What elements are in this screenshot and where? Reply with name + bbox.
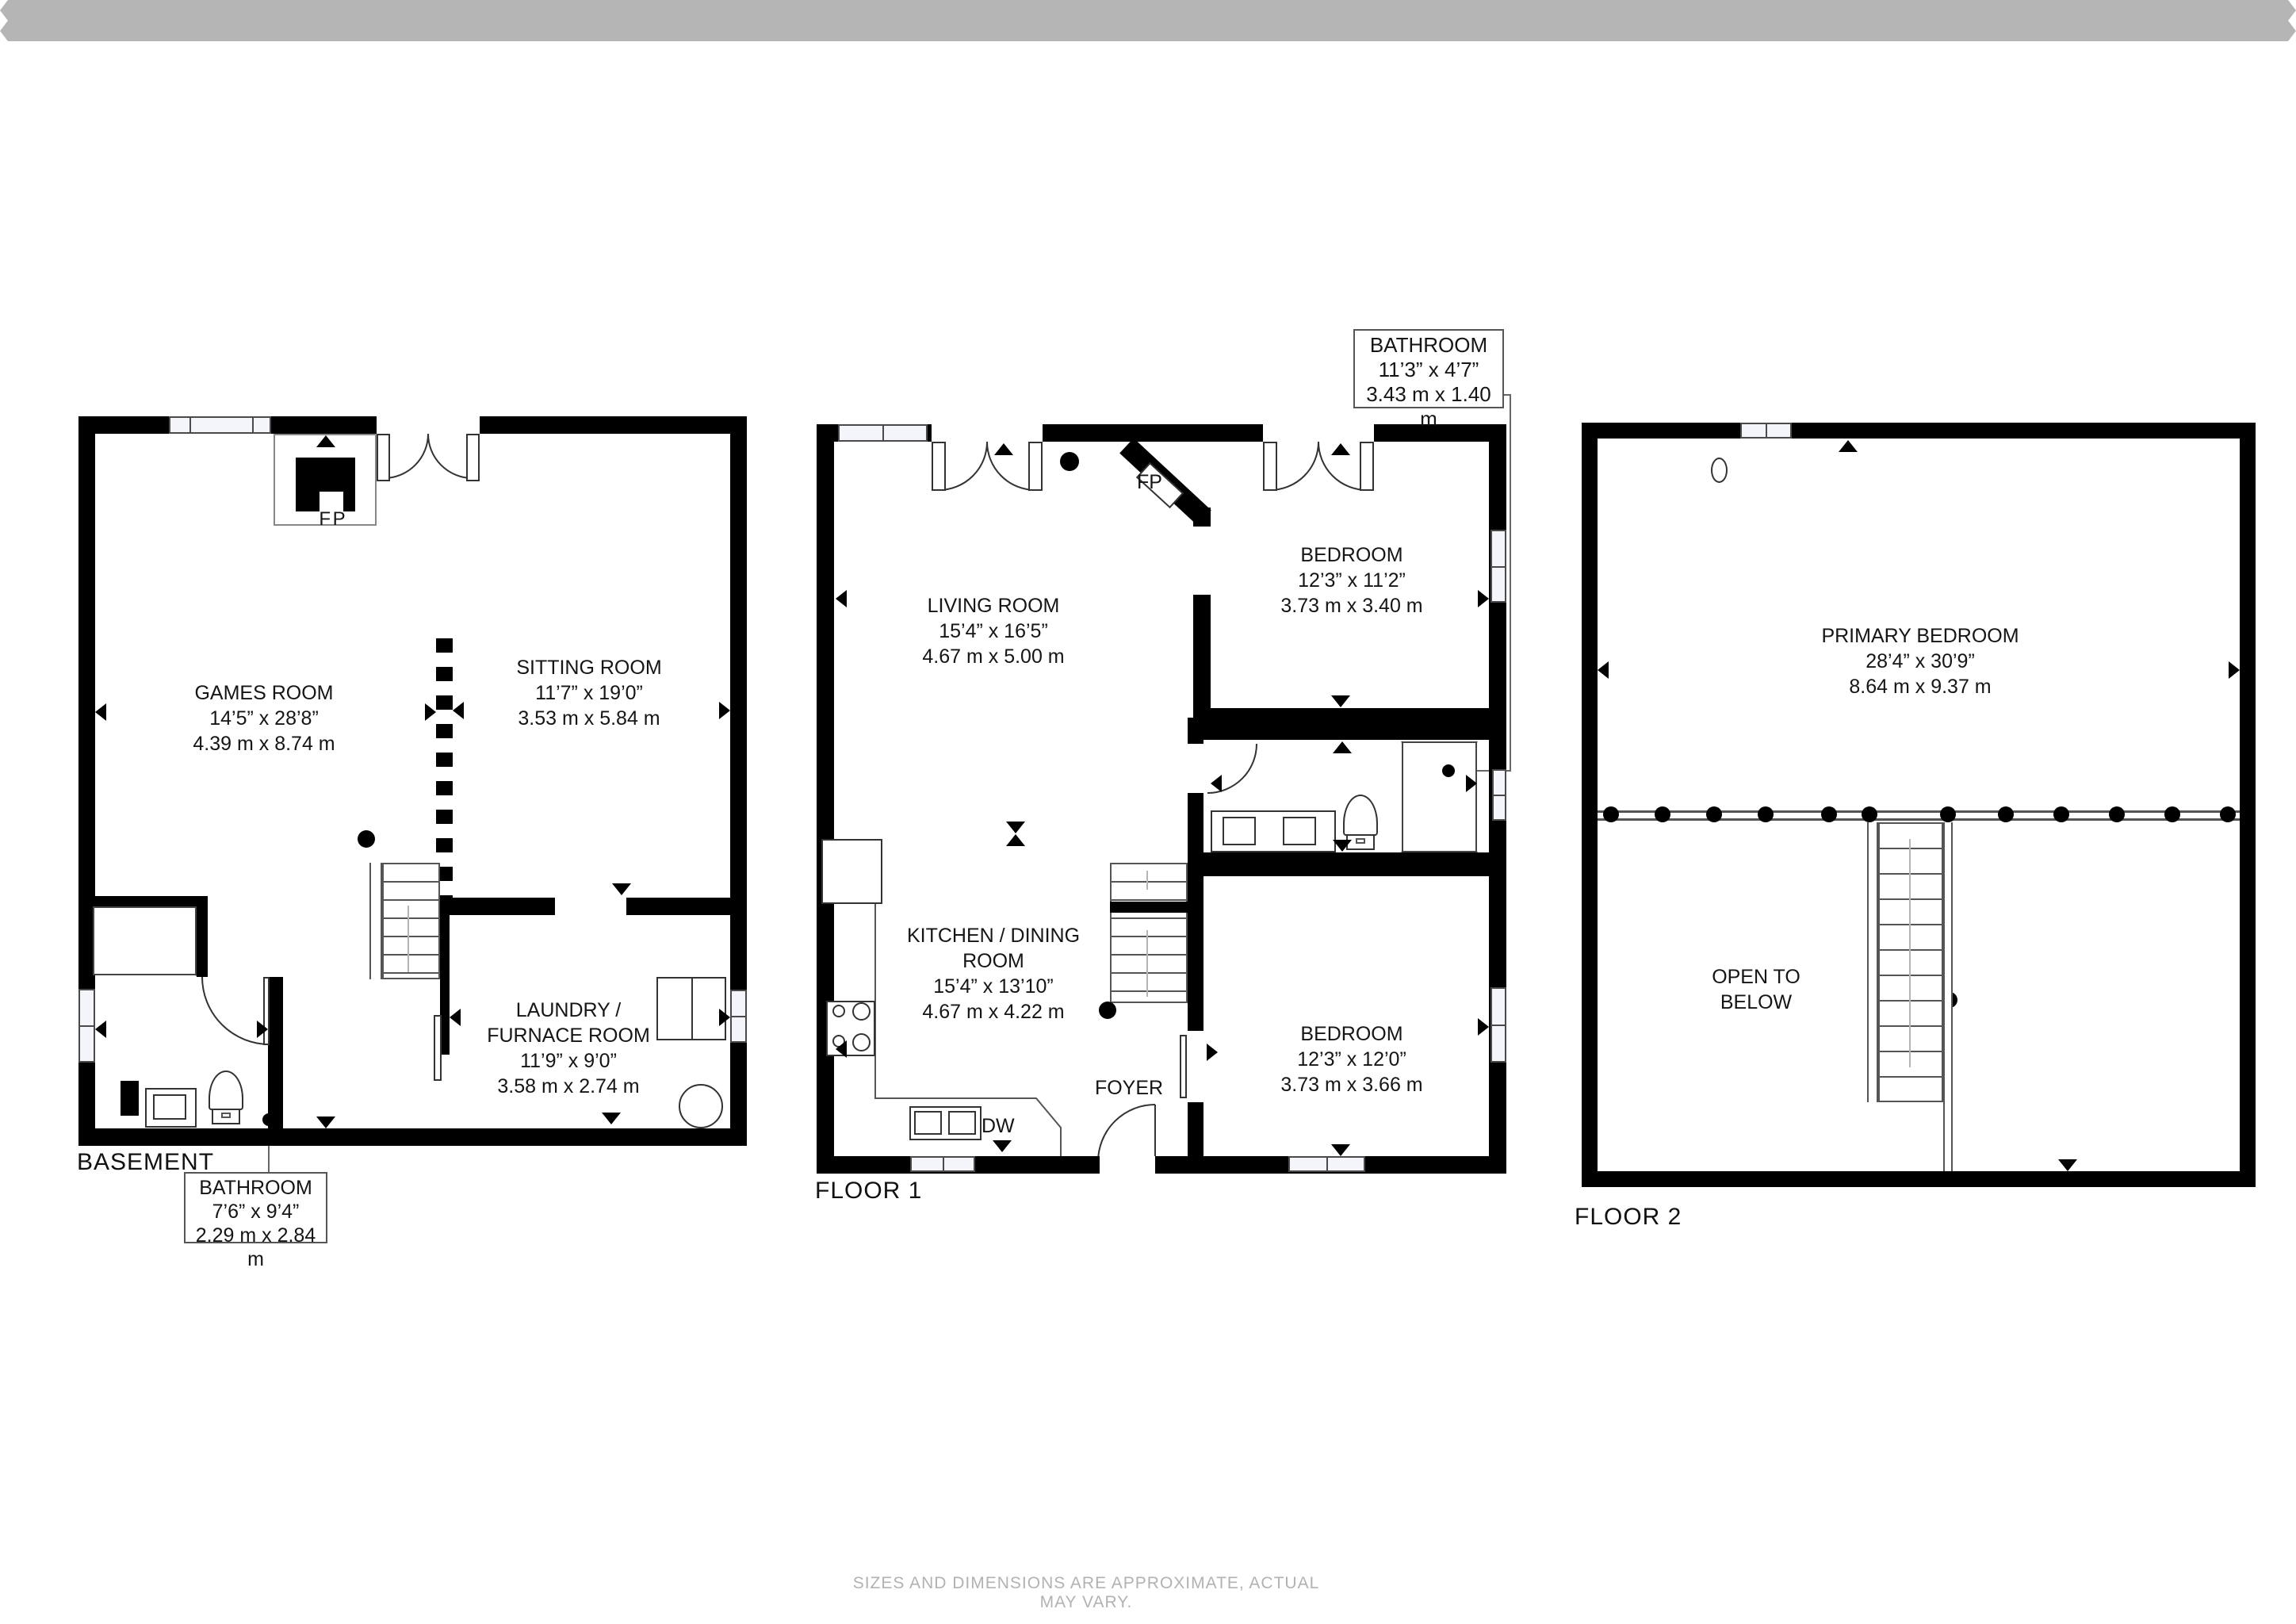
dishwasher-label: DW (982, 1113, 1029, 1139)
measure-arrow-right (719, 1009, 730, 1026)
measure-arrow-down (1331, 695, 1350, 707)
door-leaf (434, 1015, 442, 1081)
measure-arrow-down (612, 883, 631, 895)
railing (1598, 818, 2240, 821)
room-dim-metric: 3.73 m x 3.66 m (1233, 1072, 1471, 1097)
room-name: BEDROOM (1233, 542, 1471, 568)
burner (852, 1033, 871, 1051)
railing-post (2164, 806, 2180, 822)
wall (1582, 423, 2256, 439)
railing-post (1758, 806, 1774, 822)
window-mullion (1492, 1025, 1505, 1026)
wall (1188, 718, 1203, 744)
measure-arrow-right (257, 1021, 268, 1038)
room-dim-metric: 3.43 m x 1.40 m (1355, 382, 1502, 431)
pot-light (1099, 1002, 1116, 1019)
room-name: KITCHEN / DINING ROOM (890, 923, 1096, 974)
stair-break-bar (1110, 902, 1188, 913)
room-name: FOYER (1081, 1075, 1177, 1101)
appliance-divider (691, 979, 693, 1039)
measure-arrow-right (1478, 590, 1489, 607)
window-mullion (252, 418, 254, 432)
room-dim-metric: 4.39 m x 8.74 m (145, 731, 383, 756)
window (838, 424, 928, 442)
window (1490, 987, 1506, 1063)
wall (78, 1128, 747, 1146)
callout-bathroom-basement: BATHROOM 7’6” x 9’4” 2.29 m x 2.84 m (184, 1172, 327, 1243)
measure-arrow-right (1466, 775, 1477, 792)
room-dim-imperial: 12’3” x 11’2” (1233, 568, 1471, 593)
window (1288, 1156, 1365, 1172)
railing-post (2109, 806, 2125, 822)
room-label-bedroom-bottom: BEDROOM 12’3” x 12’0” 3.73 m x 3.66 m (1233, 1021, 1471, 1097)
measure-arrow-left (95, 703, 106, 721)
toilet-flush (221, 1113, 231, 1118)
room-label-open-to-below: OPEN TO BELOW (1677, 964, 1835, 1015)
pot-light (358, 830, 375, 848)
window-mullion (1494, 795, 1505, 796)
measure-arrow-down (2058, 1159, 2077, 1171)
room-name: GAMES ROOM (145, 680, 383, 706)
measure-arrow-left (95, 1021, 106, 1038)
room-dim-imperial: 11’3” x 4’7” (1355, 358, 1502, 382)
room-name: BATHROOM (1355, 333, 1502, 358)
floorplan-page: F P GAMES ROOM 14’5” x 28’8” 4.39 m x 8.… (0, 0, 2296, 1624)
french-door-leaf (1263, 442, 1277, 491)
room-divider-marker (1006, 834, 1025, 846)
railing-post (1862, 806, 1877, 822)
window (1490, 530, 1506, 603)
measure-arrow-left (1598, 661, 1609, 679)
room-dim-metric: 3.58 m x 2.74 m (465, 1074, 672, 1099)
pot-light (1060, 452, 1079, 471)
toilet-flush (1356, 838, 1365, 844)
window-mullion (189, 418, 191, 432)
room-dim-imperial: 15’4” x 16’5” (874, 619, 1112, 644)
window-mullion (882, 426, 884, 440)
room-name: BEDROOM (1233, 1021, 1471, 1047)
room-name: LAUNDRY / FURNACE ROOM (465, 998, 672, 1048)
window (1492, 769, 1506, 821)
measure-arrow-left (836, 1040, 847, 1058)
door-opening (1100, 1156, 1155, 1174)
shower (1402, 741, 1477, 852)
fireplace-label: FP (1126, 469, 1173, 495)
room-name: LIVING ROOM (874, 593, 1112, 619)
door-opening (377, 416, 480, 434)
disclaimer-text: SIZES AND DIMENSIONS ARE APPROXIMATE, AC… (840, 1574, 1332, 1612)
railing (1598, 810, 2240, 813)
room-label-foyer: FOYER (1081, 1075, 1177, 1101)
measure-arrow-left (453, 702, 464, 719)
wall (1188, 1102, 1203, 1156)
measure-arrow-up (994, 443, 1013, 455)
water-heater (679, 1084, 723, 1128)
sink (914, 1111, 942, 1135)
window-mullion (1326, 1158, 1328, 1170)
callout-anchor-dot (1442, 764, 1455, 777)
room-dim-metric: 4.67 m x 5.00 m (874, 644, 1112, 669)
wall (1193, 595, 1211, 718)
wall (1193, 507, 1211, 527)
fireplace-label: F P (300, 507, 363, 530)
room-divider-marker (1006, 822, 1025, 833)
railing-post (1998, 806, 2014, 822)
measure-arrow-up (1333, 741, 1352, 753)
room-name: BATHROOM (186, 1176, 326, 1200)
room-label-laundry-furnace: LAUNDRY / FURNACE ROOM 11’9” x 9’0” 3.58… (465, 998, 672, 1099)
window-mullion (732, 1016, 745, 1017)
sink (948, 1111, 976, 1135)
floor-label-floor2: FLOOR 2 (1575, 1204, 1682, 1231)
room-dim-metric: 3.73 m x 3.40 m (1233, 593, 1471, 619)
wall (1193, 708, 1506, 740)
railing-post (1655, 806, 1670, 822)
wall (91, 896, 208, 906)
measure-arrow-up (1839, 440, 1858, 452)
room-dim-metric: 3.53 m x 5.84 m (470, 706, 708, 731)
room-dim-imperial: 7’6” x 9’4” (186, 1200, 326, 1224)
measure-arrow-left (450, 1009, 461, 1026)
floor-label-basement: BASEMENT (77, 1149, 214, 1176)
railing-post (1940, 806, 1956, 822)
window (169, 416, 271, 434)
room-dim-metric: 2.29 m x 2.84 m (186, 1224, 326, 1271)
window (1740, 423, 1792, 439)
railing-post (1821, 806, 1837, 822)
window-mullion (1766, 424, 1767, 437)
room-name: SITTING ROOM (470, 655, 708, 680)
french-door-leaf (466, 434, 480, 481)
measure-arrow-down (993, 1140, 1012, 1152)
room-name: PRIMARY BEDROOM (1801, 623, 2039, 649)
ceiling-light (1711, 458, 1728, 483)
stair-direction-line (408, 906, 409, 972)
door-opening (932, 424, 1043, 442)
room-dim-imperial: 14’5” x 28’8” (145, 706, 383, 731)
refrigerator (821, 839, 882, 904)
burner (832, 1005, 845, 1017)
french-door-leaf (932, 442, 946, 491)
room-label-kitchen-dining: KITCHEN / DINING ROOM 15’4” x 13’10” 4.6… (890, 923, 1096, 1025)
room-label-sitting-room: SITTING ROOM 11’7” x 19’0” 3.53 m x 5.84… (470, 655, 708, 731)
wall (817, 424, 834, 1174)
stair-rail (1867, 822, 1878, 1102)
measure-arrow-up (1331, 443, 1350, 455)
window (910, 1156, 975, 1172)
room-dim-imperial: 12’3” x 12’0” (1233, 1047, 1471, 1072)
room-label-living-room: LIVING ROOM 15’4” x 16’5” 4.67 m x 5.00 … (874, 593, 1112, 669)
room-dim-metric: 4.67 m x 4.22 m (890, 999, 1096, 1025)
railing-post (1706, 806, 1722, 822)
wall (1582, 1171, 2256, 1187)
measure-arrow-down (316, 1116, 335, 1128)
room-label-primary-bedroom: PRIMARY BEDROOM 28’4” x 30’9” 8.64 m x 9… (1801, 623, 2039, 699)
measure-arrow-down (1333, 840, 1352, 852)
window (78, 989, 95, 1063)
callout-anchor-dot (262, 1113, 275, 1126)
measure-arrow-up (316, 435, 335, 447)
room-dim-imperial: 11’9” x 9’0” (465, 1048, 672, 1074)
window (730, 990, 747, 1043)
wall (1188, 793, 1203, 1031)
stair-rail (1943, 822, 1953, 1171)
measure-arrow-right (2229, 661, 2240, 679)
wall (197, 896, 208, 977)
window-mullion (80, 1025, 94, 1027)
room-dim-imperial: 28’4” x 30’9” (1801, 649, 2039, 674)
railing-post (1603, 806, 1619, 822)
window-mullion (943, 1158, 944, 1170)
wall (440, 898, 555, 915)
floor-label-floor1: FLOOR 1 (815, 1178, 922, 1205)
callout-bathroom-floor1: BATHROOM 11’3” x 4’7” 3.43 m x 1.40 m (1353, 329, 1504, 408)
room-dim-metric: 8.64 m x 9.37 m (1801, 674, 2039, 699)
french-door-leaf (1360, 442, 1374, 491)
room-label-bedroom-top: BEDROOM 12’3” x 11’2” 3.73 m x 3.40 m (1233, 542, 1471, 619)
room-name: OPEN TO BELOW (1677, 964, 1835, 1015)
measure-arrow-right (1207, 1044, 1218, 1061)
french-door-leaf (377, 434, 390, 481)
french-door-leaf (1028, 442, 1043, 491)
door-leaf (1180, 1035, 1187, 1098)
measure-arrow-down (602, 1113, 621, 1124)
sink (1283, 817, 1316, 845)
room-label-games-room: GAMES ROOM 14’5” x 28’8” 4.39 m x 8.74 m (145, 680, 383, 756)
wall (1193, 852, 1506, 876)
chimney-block (121, 1081, 139, 1116)
stairs-floor1 (1110, 863, 1188, 1003)
sink (1223, 817, 1256, 845)
wall (626, 898, 747, 915)
wall (2240, 423, 2256, 1187)
stair-direction-line (1146, 871, 1148, 890)
railing-post (2220, 806, 2236, 822)
wall (1582, 423, 1598, 1187)
window-mullion (1492, 566, 1505, 568)
measure-arrow-left (836, 590, 847, 607)
room-dim-imperial: 15’4” x 13’10” (890, 974, 1096, 999)
room-dim-imperial: 11’7” x 19’0” (470, 680, 708, 706)
stairs-basement (382, 863, 440, 979)
wall (268, 977, 283, 1128)
railing-post (2053, 806, 2069, 822)
burner (852, 1002, 871, 1021)
stair-rail (369, 863, 382, 979)
stair-direction-line (1146, 930, 1148, 997)
stair-direction-line (1909, 839, 1911, 1067)
stairs-floor2 (1878, 822, 1943, 1102)
measure-arrow-left (1211, 775, 1222, 792)
measure-arrow-right (425, 703, 436, 721)
sink (153, 1094, 186, 1120)
measure-arrow-right (719, 702, 730, 719)
shower (93, 906, 197, 975)
measure-arrow-down (1331, 1144, 1350, 1156)
measure-arrow-right (1478, 1018, 1489, 1036)
